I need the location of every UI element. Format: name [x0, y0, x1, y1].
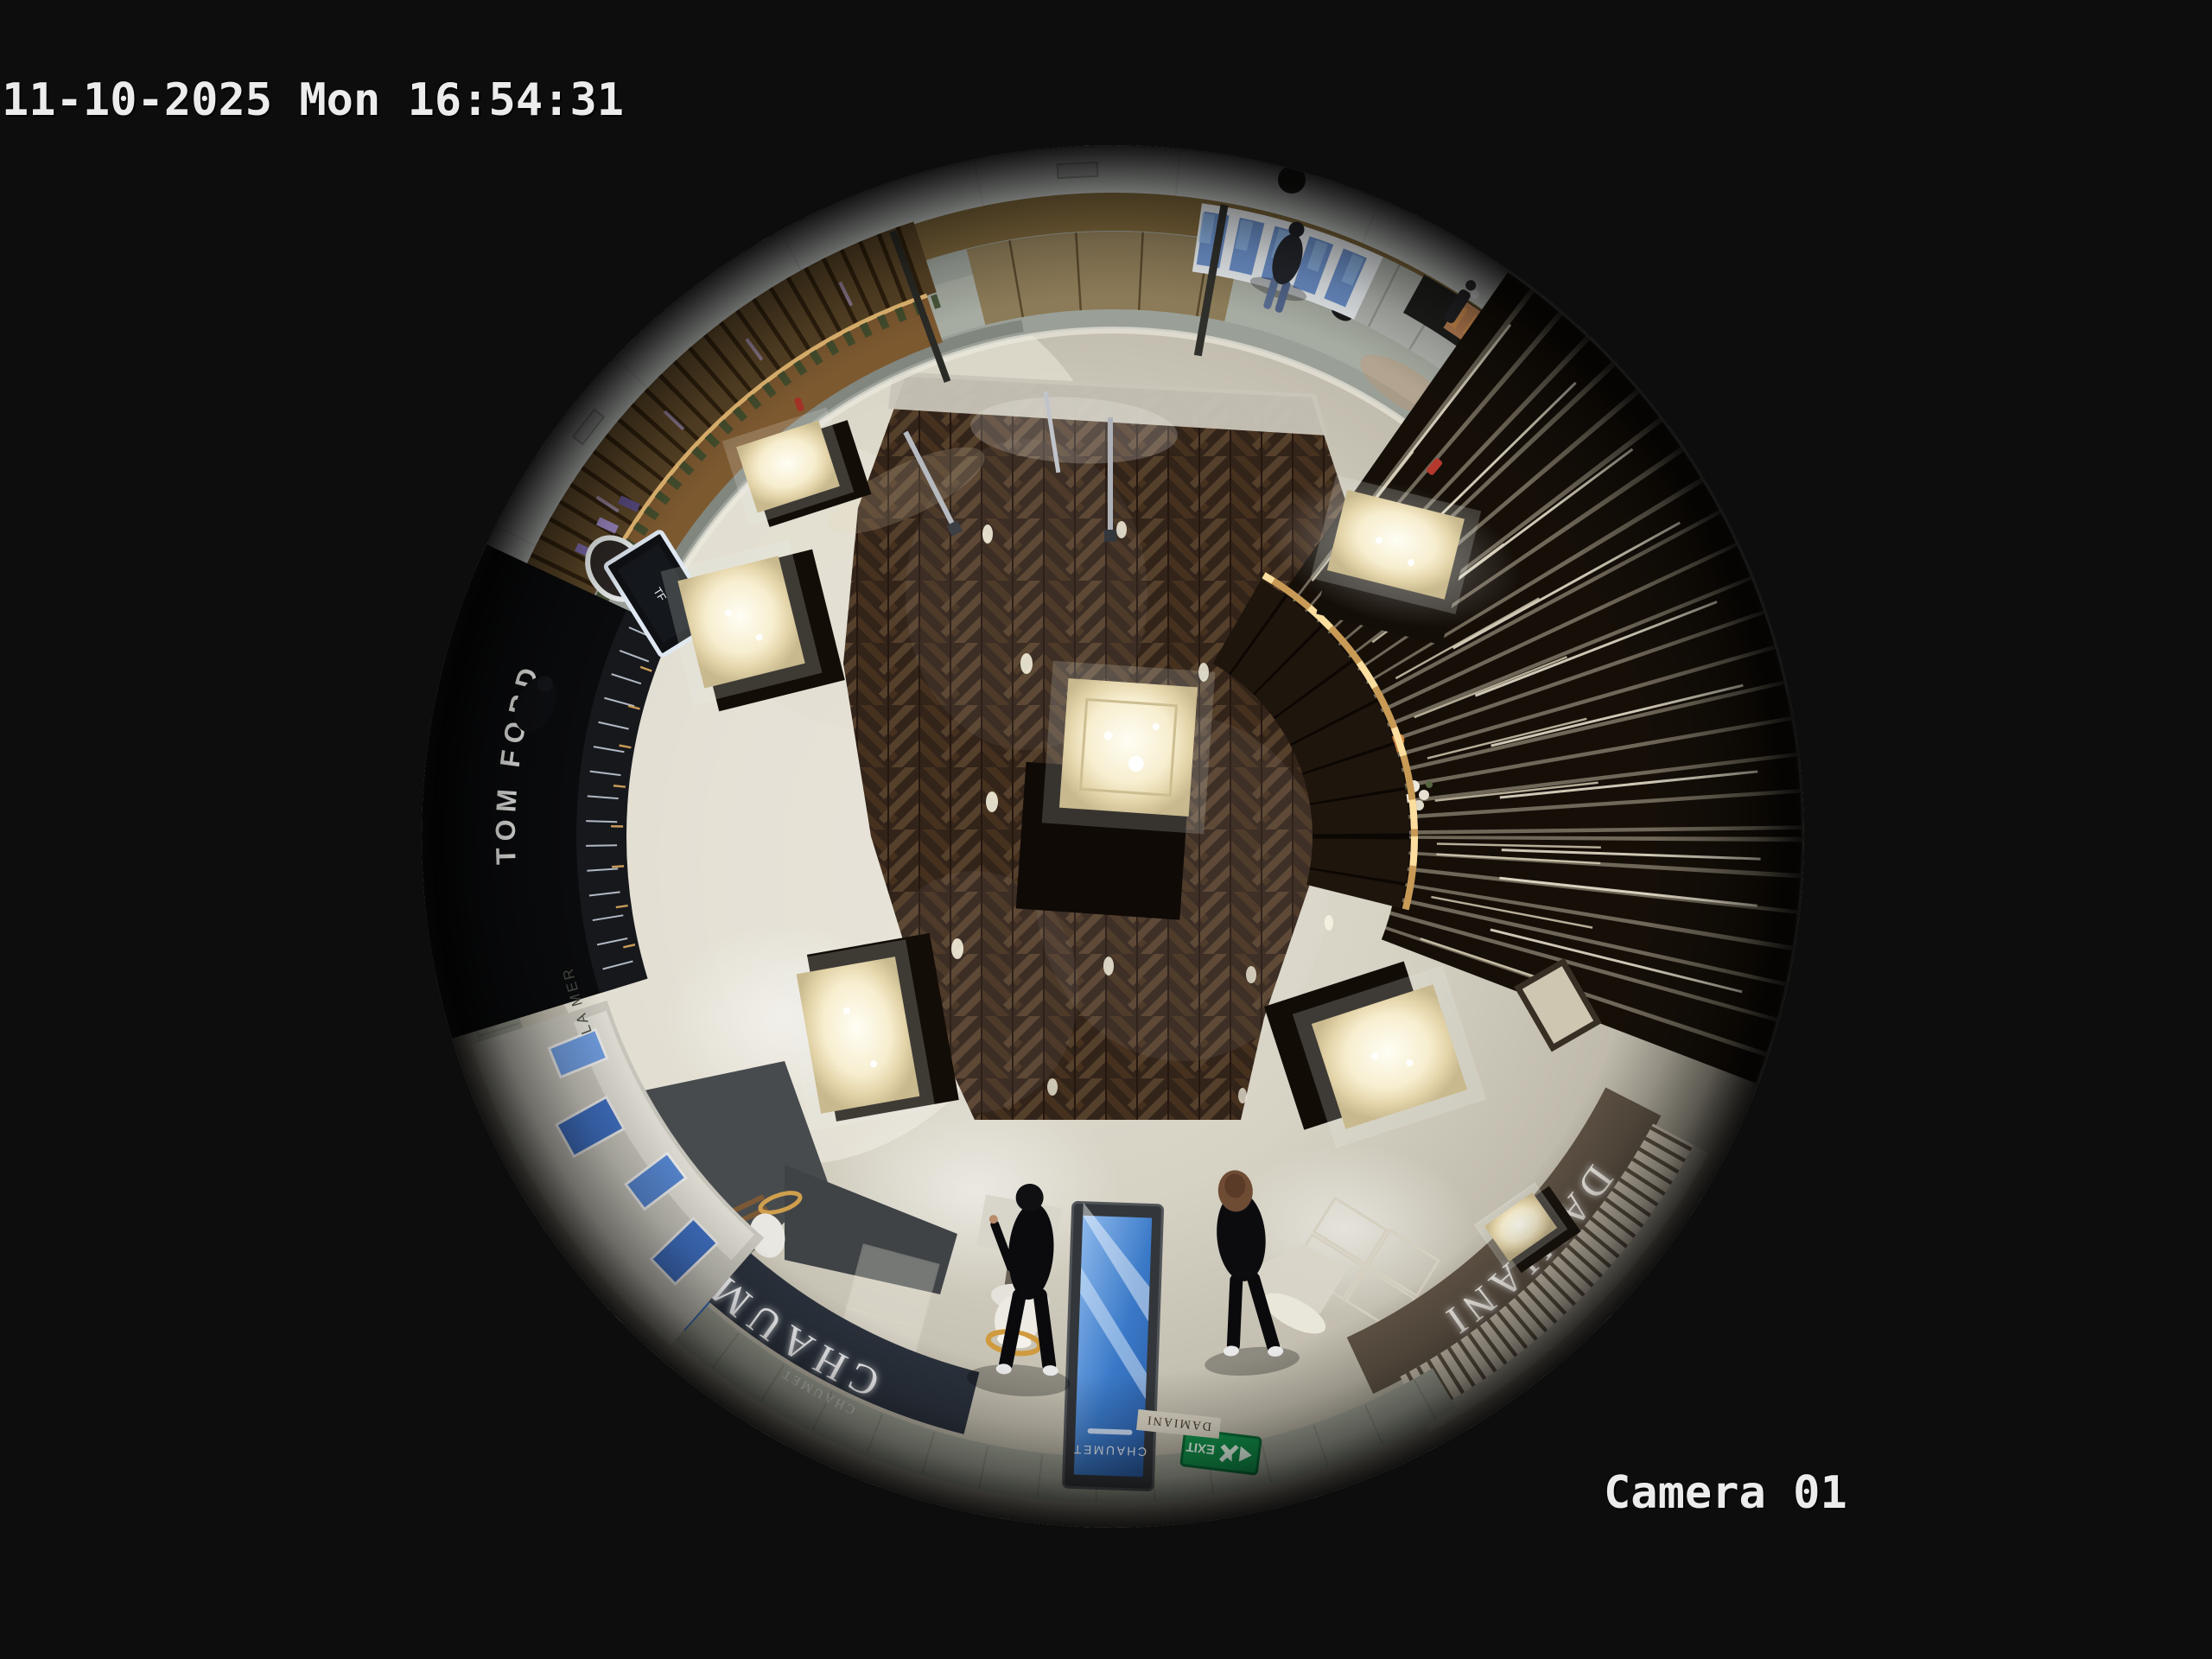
- vignette: [422, 145, 1804, 1528]
- fisheye-scene: DAMIANI: [422, 145, 1804, 1528]
- cctv-frame: DAMIANI: [0, 0, 2212, 1659]
- timestamp-overlay: 11-10-2025 Mon 16:54:31: [2, 74, 624, 126]
- camera-label-overlay: Camera 01: [1604, 1467, 1847, 1519]
- fisheye-view: DAMIANI: [422, 145, 1804, 1528]
- fisheye-content: DAMIANI: [422, 145, 1804, 1528]
